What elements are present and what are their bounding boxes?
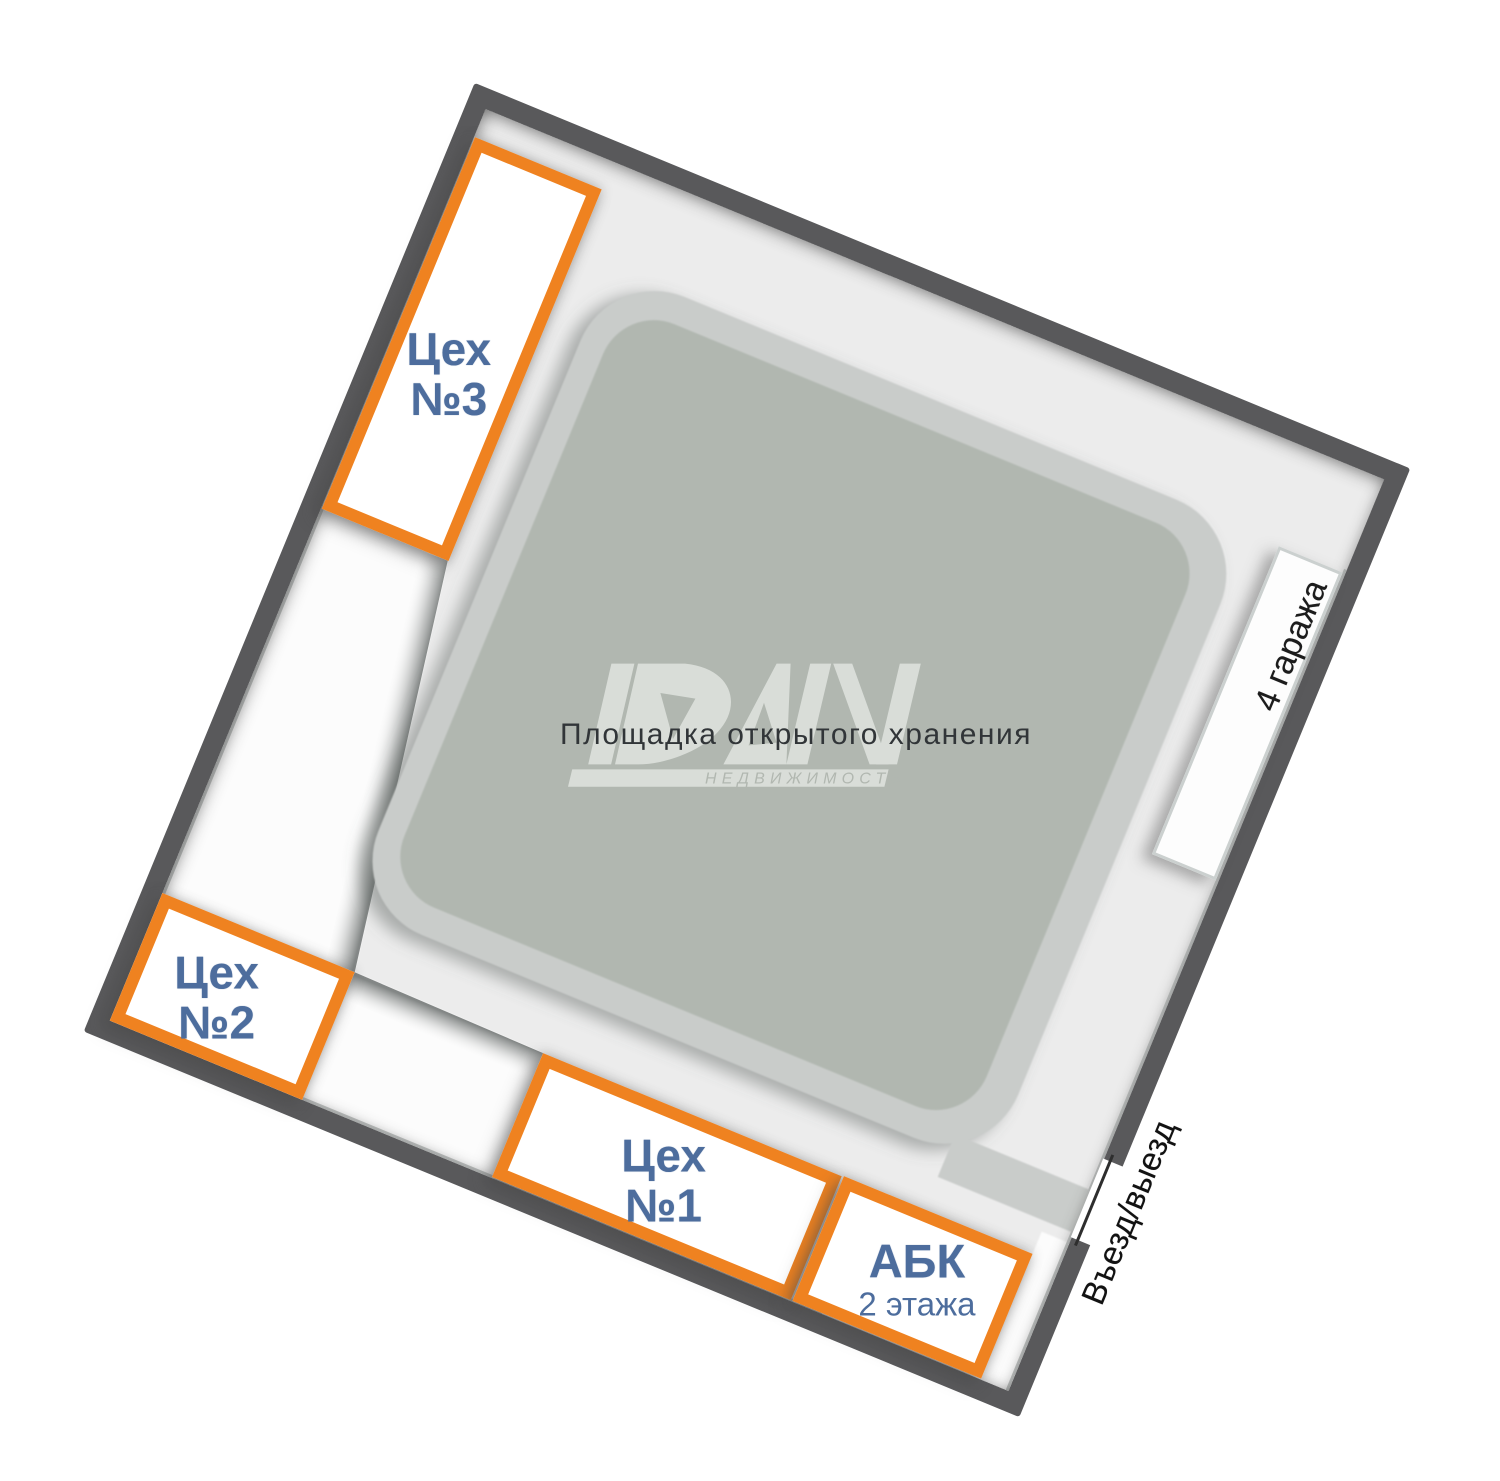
svg-text:НЕДВИЖИМОСТЬ: НЕДВИЖИМОСТЬ bbox=[705, 771, 906, 788]
